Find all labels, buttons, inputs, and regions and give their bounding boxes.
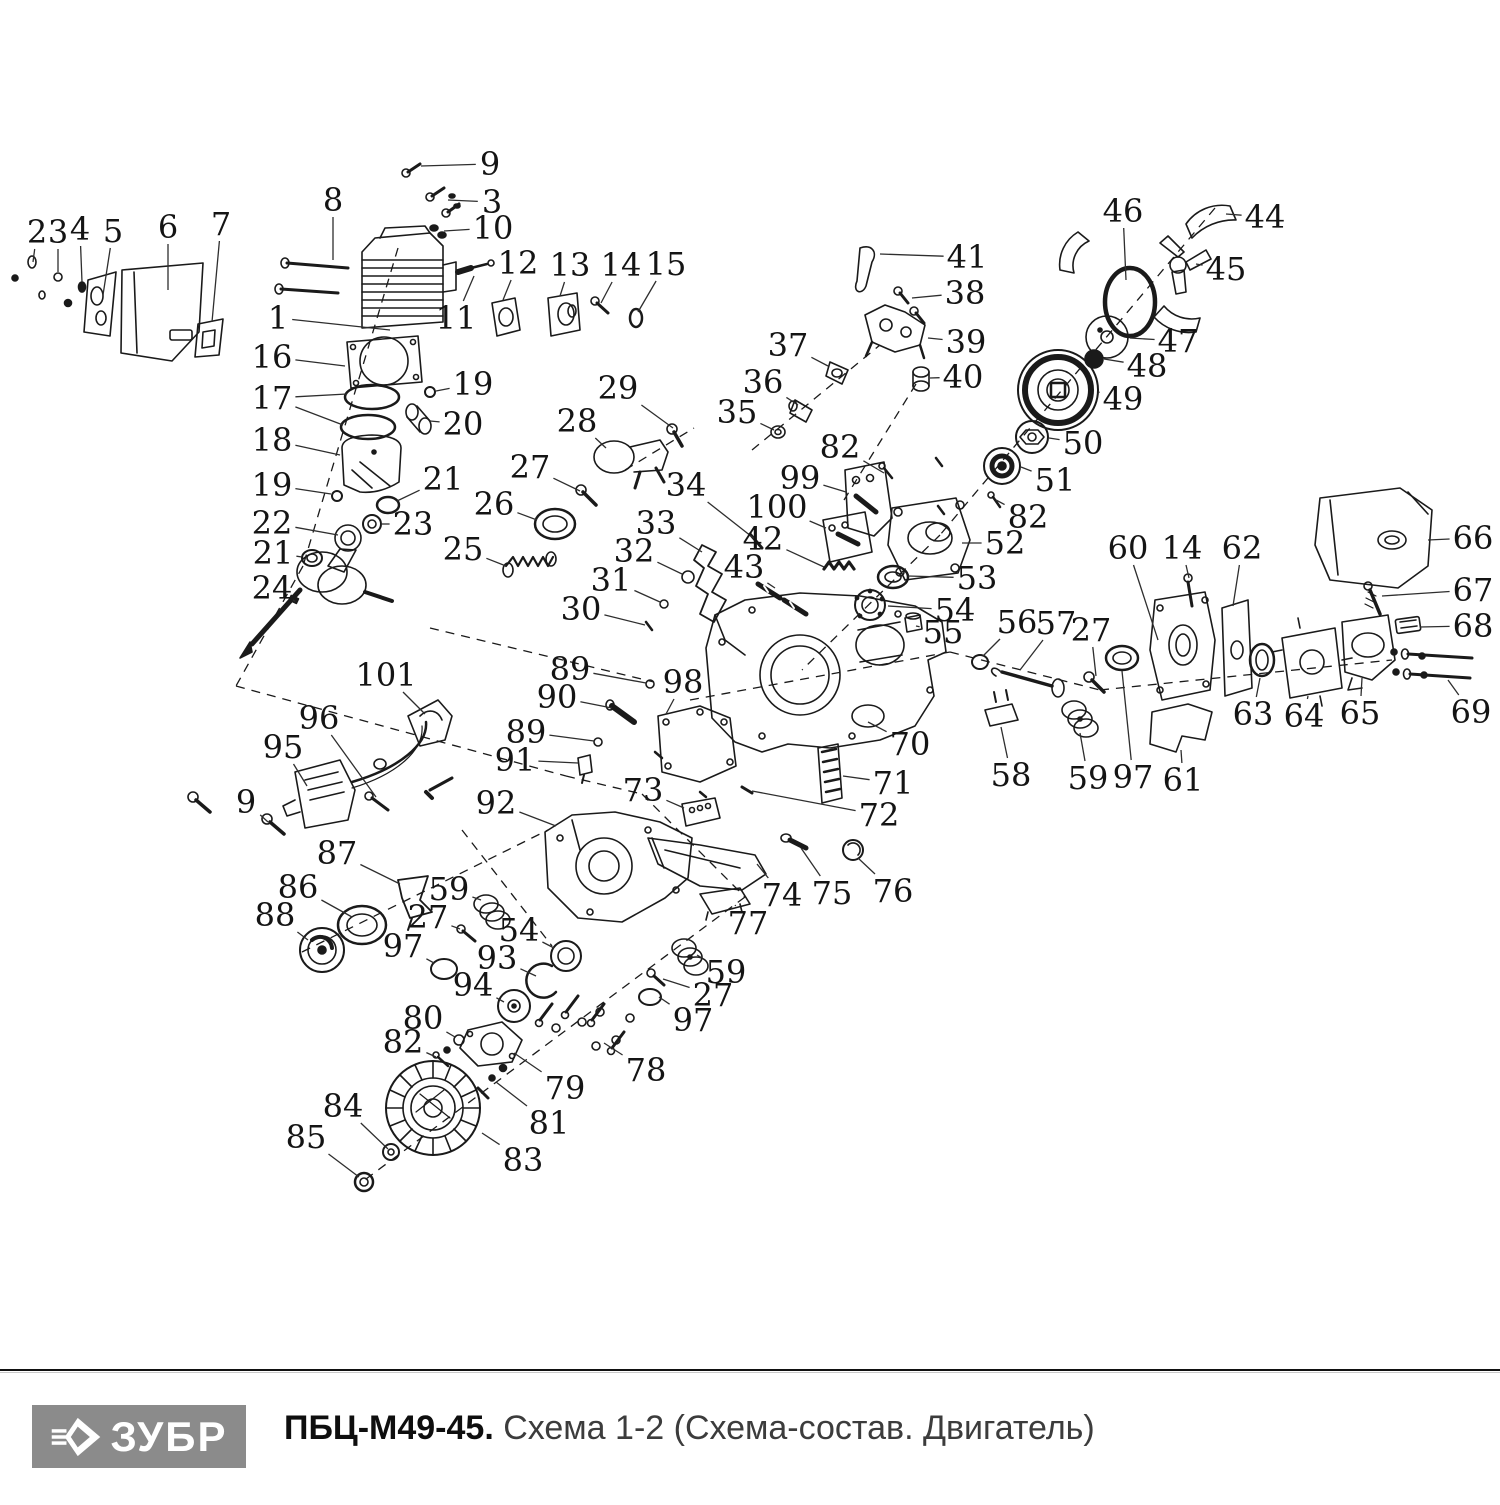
leader-line [1382,592,1450,597]
leader-line [426,959,434,963]
leader-line [212,241,219,322]
leader-line [1020,640,1043,670]
part-label-62: 62 [1222,529,1263,567]
leader-line [888,606,932,609]
leader-line [444,229,470,231]
part-label-72: 72 [859,796,900,834]
part-label-68: 68 [1453,607,1494,645]
leader-line [580,702,612,708]
assembly-axis-line [625,428,694,470]
leader-line [767,583,775,588]
part-label-82: 82 [383,1023,424,1061]
brand-name: ЗУБР [110,1416,227,1458]
part-label-18: 18 [252,421,293,459]
part-label-19: 19 [453,365,494,403]
leader-line [549,735,594,741]
assembly-axis-line [1100,660,1392,690]
footer-separator-shadow [0,1372,1500,1373]
leader-line [448,200,478,201]
leader-line [916,626,920,627]
part-label-17: 17 [252,379,293,417]
leader-line [657,562,682,574]
part-label-55: 55 [923,613,964,651]
leader-line [482,1133,500,1145]
part-label-76: 76 [873,872,914,910]
part-label-52: 52 [985,524,1026,562]
leader-line [679,538,702,552]
part-label-78: 78 [626,1051,667,1089]
leader-line [436,388,450,391]
part-label-60: 60 [1108,529,1149,567]
part-label-97: 97 [383,927,424,965]
part-label-9: 9 [480,145,500,183]
part-label-23: 23 [393,505,434,543]
part-label-16: 16 [252,338,293,376]
leader-line [560,282,565,296]
part-label-95: 95 [263,728,304,766]
leader-line [1226,214,1242,215]
part-label-85: 85 [286,1118,327,1156]
leader-line [538,761,578,763]
assembly-axis-line [802,535,940,670]
part-label-3: 3 [48,213,68,251]
leader-line [430,421,440,422]
part-label-66: 66 [1453,519,1494,557]
part-label-82: 82 [820,428,861,466]
leader-line [446,1032,455,1037]
leader-line [601,282,612,303]
part-label-67: 67 [1453,571,1494,609]
part-label-84: 84 [323,1087,364,1125]
part-label-13: 13 [550,246,591,284]
part-label-73: 73 [623,771,664,809]
part-label-19: 19 [252,466,293,504]
leader-line [361,1123,388,1149]
part-label-90: 90 [537,678,578,716]
part-label-28: 28 [557,402,598,440]
leader-line [1122,671,1131,760]
part-label-6: 6 [158,208,178,246]
leader-line [421,164,476,166]
leader-line [1104,359,1124,362]
part-label-4: 4 [70,210,90,248]
leader-line [519,812,556,826]
part-label-92: 92 [476,784,517,822]
leader-line [496,1082,527,1106]
part-label-87: 87 [317,834,358,872]
leader-line [811,357,828,366]
part-label-61: 61 [1163,761,1204,799]
leader-line [1420,626,1450,627]
leader-line [641,405,673,428]
footer: ЗУБР ПБЦ-М49-45. Схема 1-2 (Схема-состав… [0,1395,1500,1485]
part-label-27: 27 [1071,611,1112,649]
part-label-33: 33 [636,504,677,542]
part-label-11: 11 [436,299,477,337]
part-label-1: 1 [268,299,288,337]
leader-line [1001,727,1008,758]
part-label-50: 50 [1063,424,1104,462]
leader-line [1428,539,1450,540]
leader-line [542,942,554,948]
part-label-65: 65 [1340,694,1381,732]
part-label-101: 101 [355,656,416,694]
leader-line [752,791,856,811]
part-label-5: 5 [103,212,123,250]
leader-line [360,865,400,885]
assembly-axis-line [950,652,1100,690]
leader-line [295,407,343,425]
part-label-15: 15 [646,245,687,283]
leader-line [295,527,338,535]
leader-line [1233,565,1239,606]
leader-line [1130,338,1155,340]
leader-line [638,281,656,312]
part-label-94: 94 [453,966,494,1004]
leader-line [928,338,943,340]
part-label-2: 2 [27,213,47,251]
part-label-43: 43 [724,548,765,586]
part-label-83: 83 [503,1141,544,1179]
leader-line [296,556,302,557]
starter-group [300,906,386,972]
leader-line [1049,438,1060,440]
page-title: ПБЦ-М49-45. Схема 1-2 (Схема-состав. Дви… [284,1409,1095,1448]
part-label-69: 69 [1451,693,1492,731]
part-label-77: 77 [728,904,769,942]
part-label-38: 38 [945,274,986,312]
part-label-97: 97 [1113,758,1154,796]
part-label-20: 20 [443,405,484,443]
diagram-svg: 2345678931011112131415161718192019212223… [0,0,1500,1500]
part-label-9: 9 [236,783,256,821]
part-label-96: 96 [299,699,340,737]
leader-line [983,639,1000,656]
leader-line [463,276,474,301]
part-label-14: 14 [1162,529,1203,567]
part-label-41: 41 [947,238,988,276]
leader-line [663,979,690,988]
part-label-21: 21 [423,460,464,498]
leader-line [604,615,645,625]
brand-arrow-icon [50,1415,102,1459]
part-label-40: 40 [943,358,984,396]
part-label-27: 27 [510,448,551,486]
leader-line [880,254,944,256]
part-label-36: 36 [743,363,784,401]
part-label-12: 12 [498,244,539,282]
part-label-97: 97 [673,1001,714,1039]
leader-line [760,423,774,430]
leader-line [295,394,347,397]
part-label-75: 75 [812,874,853,912]
leader-line [823,485,846,492]
part-label-58: 58 [991,756,1032,794]
part-label-51: 51 [1035,461,1076,499]
part-label-37: 37 [768,326,809,364]
part-label-64: 64 [1284,697,1325,735]
leader-line [397,490,420,501]
part-label-39: 39 [946,323,987,361]
part-label-81: 81 [529,1104,570,1142]
model-number: ПБЦ-М49-45. [284,1409,494,1447]
leader-line [1021,467,1032,471]
part-label-49: 49 [1103,380,1144,418]
leader-line [634,591,660,603]
leader-line [503,280,511,300]
leader-line [801,848,820,876]
leader-line [553,478,580,491]
leader-line [908,576,954,577]
part-label-88: 88 [255,896,296,934]
leader-line [786,550,824,567]
leader-line [329,1154,360,1177]
leader-line [295,360,345,366]
scheme-subtitle: Схема 1-2 (Схема-состав. Двигатель) [503,1409,1095,1447]
assembly-axis-line [642,794,745,897]
part-label-25: 25 [443,530,484,568]
brand-logo: ЗУБР [32,1405,246,1468]
diagram-stage: 2345678931011112131415161718192019212223… [0,0,1500,1500]
part-label-100: 100 [746,488,807,526]
leader-line [514,1053,542,1072]
part-label-63: 63 [1233,695,1274,733]
part-label-46: 46 [1103,192,1144,230]
leader-line [843,776,870,780]
part-label-44: 44 [1245,198,1286,236]
part-label-10: 10 [473,209,514,247]
part-label-14: 14 [601,246,642,284]
part-label-45: 45 [1206,250,1247,288]
leader-line [1124,228,1126,280]
part-label-79: 79 [545,1069,586,1107]
leader-line [1093,647,1096,676]
part-label-26: 26 [474,485,515,523]
part-label-24: 24 [252,569,293,607]
part-label-34: 34 [666,466,707,504]
leader-line [912,295,942,298]
assembly-axis-line [430,628,654,682]
part-label-56: 56 [997,603,1038,641]
part-label-8: 8 [323,181,343,219]
leader-line [486,558,506,566]
footer-separator [0,1369,1500,1371]
part-label-70: 70 [890,725,931,763]
crankcase-left-group [431,812,863,1022]
part-label-29: 29 [598,369,639,407]
part-label-21: 21 [253,534,294,572]
leader-line [517,513,537,520]
muffler-group [12,256,223,361]
leader-line [81,246,82,282]
leader-line [295,489,331,494]
leader-line [103,248,110,295]
assembly-axis-line [690,652,950,700]
part-label-98: 98 [663,663,704,701]
leader-line [295,445,340,455]
leader-line [403,692,425,714]
part-label-7: 7 [211,205,231,243]
part-label-59: 59 [1068,759,1109,797]
part-label-91: 91 [495,741,536,779]
